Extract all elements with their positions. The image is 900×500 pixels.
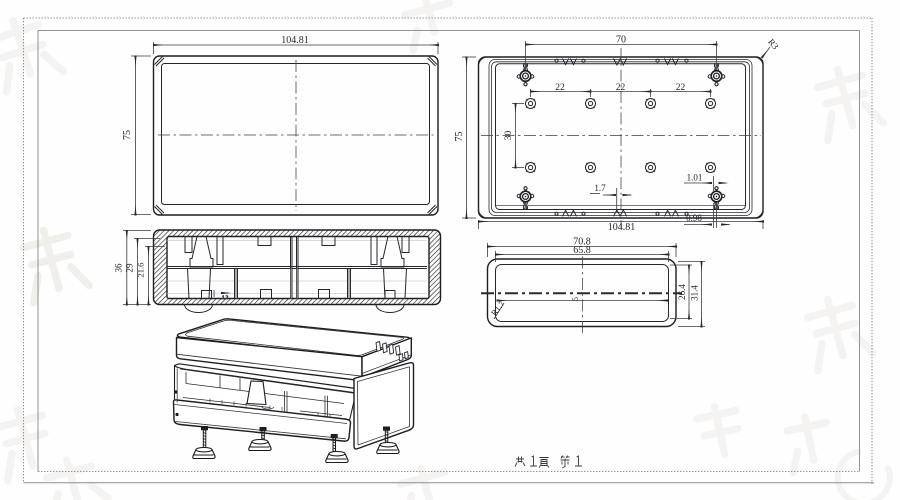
svg-text:65.8: 65.8 — [573, 245, 591, 256]
svg-text:31.4: 31.4 — [690, 285, 700, 301]
svg-text:22: 22 — [676, 83, 686, 93]
svg-text:21.6: 21.6 — [136, 263, 146, 278]
svg-text:75: 75 — [454, 132, 465, 142]
svg-text:36: 36 — [114, 263, 124, 273]
svg-text:75: 75 — [122, 130, 133, 140]
svg-text:104.81: 104.81 — [608, 222, 636, 233]
svg-text:5: 5 — [571, 297, 580, 301]
svg-text:1.7: 1.7 — [594, 183, 606, 193]
svg-text:1.2: 1.2 — [222, 296, 229, 301]
svg-text:30: 30 — [504, 131, 514, 141]
svg-text:70: 70 — [616, 35, 626, 46]
svg-text:104.81: 104.81 — [281, 35, 309, 46]
svg-text:29: 29 — [125, 263, 135, 273]
svg-text:22: 22 — [555, 83, 565, 93]
svg-text:26.4: 26.4 — [677, 284, 687, 300]
svg-text:22: 22 — [616, 83, 626, 93]
svg-text:1.01: 1.01 — [687, 173, 703, 183]
